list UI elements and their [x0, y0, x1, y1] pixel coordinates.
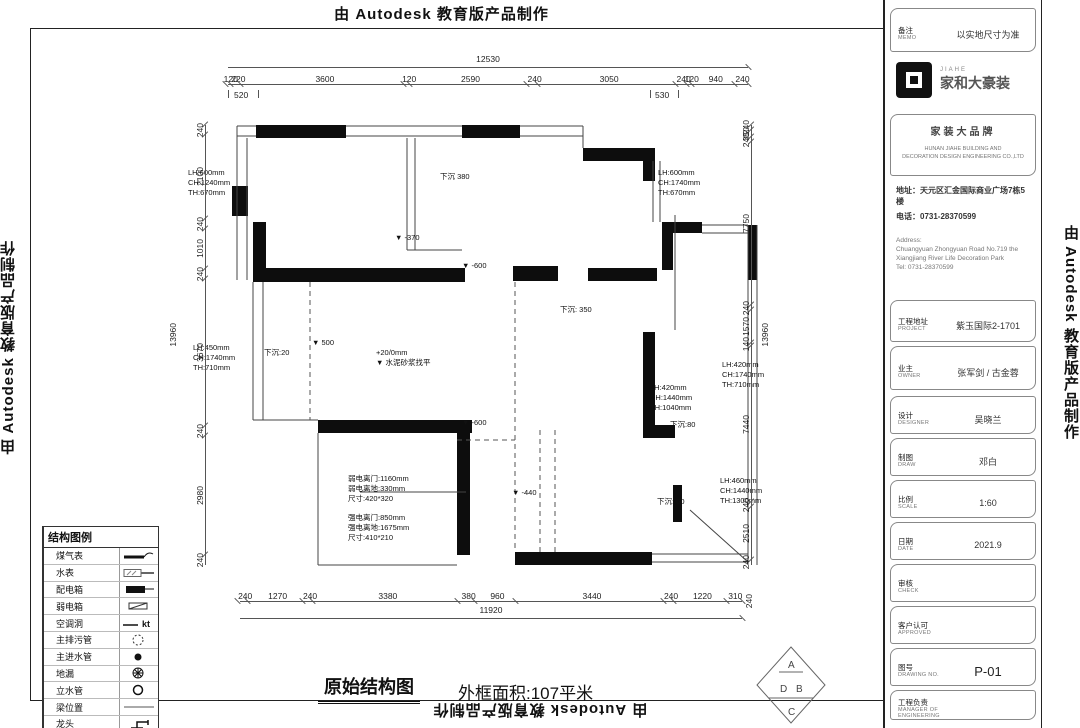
dimension-segment: 310 — [729, 588, 742, 601]
titleblock-field-check: 审核CHECK — [890, 564, 1036, 602]
dimension-label: 1570 — [741, 317, 751, 336]
frame-left — [30, 28, 31, 701]
dimension-chain-top: 12530 1202203600120259024030502401209402… — [228, 54, 748, 85]
legend-row: 配电箱 — [44, 582, 158, 599]
dimension-segment: 2590 — [412, 71, 529, 84]
svg-text:kt: kt — [142, 619, 150, 629]
memo-label: 备注 — [898, 27, 948, 35]
structure-legend: 结构图例 煤气表水表配电箱弱电箱空调洞kt主排污管主进水管地漏立水管梁位置龙头 — [42, 526, 159, 728]
compass-letter-a: A — [788, 660, 795, 671]
legend-label: 地漏 — [44, 667, 119, 680]
area-label: 外框面积:107平米 — [458, 679, 593, 704]
dimension-segment: 240 — [737, 71, 748, 84]
standpipe-symbol — [119, 682, 158, 698]
gas-symbol — [119, 548, 158, 564]
memo-value: 以实地尺寸为准 — [948, 28, 1028, 41]
field-value: 张军剑 / 古金蓉 — [948, 366, 1028, 379]
drawing-title: 原始结构图 — [318, 673, 420, 704]
floor-plan — [210, 110, 770, 580]
compass-letter-b: B — [796, 684, 803, 695]
frame-titleblock-divider — [883, 0, 885, 728]
field-label: 客户认可 — [898, 622, 948, 630]
titleblock-field-draw: 制图DRAW邓白 — [890, 438, 1036, 476]
legend-label: 配电箱 — [44, 583, 119, 596]
dimension-segment: 3380 — [315, 588, 460, 601]
dimension-label: 240 — [735, 74, 749, 84]
dimension-label: 2510 — [741, 524, 751, 543]
tick — [650, 90, 651, 98]
field-label-en: CHECK — [898, 588, 948, 594]
beam-symbol — [119, 699, 158, 715]
cad-drawing-sheet: 由 Autodesk 教育版产品制作 由 Autodesk 教育版产品制作 由 … — [0, 0, 1080, 728]
field-label-en: APPROVED — [898, 630, 948, 636]
legend-row: 地漏 — [44, 666, 158, 683]
dimension-segment: 3440 — [518, 588, 666, 601]
legend-row: 主进水管 — [44, 649, 158, 666]
compass-letter-c: C — [788, 707, 795, 718]
weakbox-symbol — [119, 598, 158, 614]
legend-row: 梁位置 — [44, 699, 158, 716]
dimension-segment: 1220 — [676, 588, 728, 601]
logo-main-text: 家和大豪装 — [940, 73, 1010, 93]
distbox-symbol — [119, 582, 158, 598]
field-label-en: SCALE — [898, 504, 948, 510]
company-logo — [896, 62, 932, 98]
brand-en2: DECORATION DESIGN ENGINEERING CO.,LTD — [891, 154, 1035, 160]
legend-label: 水表 — [44, 566, 119, 579]
titleblock-memo: 备注 MEMO 以实地尺寸为准 — [890, 8, 1036, 52]
contact-address: 地址：天元区汇金国际商业广场7栋5楼 — [896, 185, 1030, 207]
tick — [228, 90, 229, 98]
legend-row: 立水管 — [44, 682, 158, 699]
dimension-label: 3670 — [195, 343, 205, 362]
legend-label: 煤气表 — [44, 549, 119, 562]
legend-label: 龙头 — [44, 717, 119, 728]
legend-row: 弱电箱 — [44, 598, 158, 615]
dimension-segment: 240 — [192, 125, 205, 135]
titleblock-field-date: 日期DATE2021.9 — [890, 522, 1036, 560]
titleblock-field-project: 工程地址PROJECT紫玉国际2-1701 — [890, 300, 1036, 342]
compass-letter-d: D — [780, 684, 787, 695]
dimension-label: 940 — [709, 74, 723, 84]
titleblock-contact-en: Address: Chuangyuan Zhongyuan Road No.71… — [890, 234, 1036, 294]
autodesk-credit-top: 由 Autodesk 教育版产品制作 — [0, 3, 883, 24]
legend-label: 立水管 — [44, 684, 119, 697]
brand-slogan: 家装大品牌 — [891, 123, 1035, 138]
dimension-total-top: 12530 — [476, 54, 500, 67]
dimension-label: 7750 — [741, 214, 751, 233]
compass-diamond: A D B C — [755, 645, 827, 725]
field-label: 设计 — [898, 412, 948, 420]
faucet-symbol — [119, 716, 158, 728]
dimension-label: 3050 — [600, 74, 619, 84]
legend-row: 煤气表 — [44, 548, 158, 565]
dimension-label: 3440 — [583, 591, 602, 601]
dimension-segment: 240 — [192, 555, 205, 565]
dimension-label: 310 — [728, 591, 742, 601]
dimension-segment: 2980 — [192, 436, 205, 556]
field-label: 业主 — [898, 365, 948, 373]
field-value: 邓白 — [948, 455, 1028, 468]
field-label: 制图 — [898, 454, 948, 462]
dimension-label: 1220 — [693, 591, 712, 601]
dimension-chain-right: 2403502407750240157014074402402510240 13… — [738, 125, 772, 565]
dimension-segment: 7440 — [738, 346, 751, 502]
field-label: 日期 — [898, 538, 948, 546]
dimension-segment: 3670 — [192, 279, 205, 426]
titleblock-field-approved: 客户认可APPROVED — [890, 606, 1036, 644]
achole-symbol: kt — [119, 615, 158, 631]
frame-right — [1041, 0, 1042, 728]
field-value: 2021.9 — [948, 540, 1028, 550]
legend-row: 主排污管 — [44, 632, 158, 649]
field-label-en: DATE — [898, 546, 948, 552]
brand-en1: HUNAN JIAHE BUILDING AND — [891, 146, 1035, 152]
dimension-tier2-left: 520 — [234, 90, 248, 100]
tick — [678, 90, 679, 98]
dimension-segment: 1270 — [250, 588, 305, 601]
dimension-segment: 240 — [738, 560, 751, 565]
legend-title: 结构图例 — [44, 527, 158, 548]
dimension-label: 1270 — [268, 591, 287, 601]
dimension-label: 3600 — [315, 74, 334, 84]
dimension-label: 240 — [741, 555, 751, 569]
dimension-segment: 7750 — [738, 142, 751, 305]
dimension-chain-left: 13960 2402100240101024036702402980240 — [176, 125, 210, 565]
legend-label: 梁位置 — [44, 701, 119, 714]
dimension-total-right: 13960 — [760, 323, 770, 347]
dimension-label: 960 — [490, 591, 504, 601]
field-label-en: OWNER — [898, 373, 948, 379]
field-value: P-01 — [948, 664, 1028, 679]
legend-row: 空调洞kt — [44, 615, 158, 632]
contact-en-3: Xiangjiang River Life Decoration Park — [896, 255, 1030, 262]
field-label-en: PROJECT — [898, 326, 948, 332]
memo-en: MEMO — [898, 35, 948, 41]
field-label-en: DRAWING NO. — [898, 672, 948, 678]
legend-label: 主进水管 — [44, 650, 119, 663]
dimension-segment: 240 — [192, 219, 205, 229]
legend-label: 主排污管 — [44, 633, 119, 646]
titleblock-contact: 地址：天元区汇金国际商业广场7栋5楼 电话：0731-28370599 — [890, 182, 1036, 228]
field-value: 紫玉国际2-1701 — [948, 319, 1028, 332]
dimension-label: 2590 — [461, 74, 480, 84]
field-label: 工程地址 — [898, 318, 948, 326]
titleblock-brand: 家装大品牌 HUNAN JIAHE BUILDING AND DECORATIO… — [890, 114, 1036, 176]
dimension-label: 2980 — [195, 486, 205, 505]
titleblock-field-designer: 设计DESIGNER吴晓兰 — [890, 396, 1036, 434]
sewage-symbol — [119, 632, 158, 648]
dimension-segment: 1010 — [192, 229, 205, 270]
dimension-label: 2100 — [195, 167, 205, 186]
autodesk-credit-left: 由 Autodesk 教育版产品制作 — [0, 240, 19, 455]
drain-symbol — [119, 666, 158, 682]
dimension-segment: 2510 — [738, 507, 751, 560]
dimension-segment: 940 — [694, 71, 737, 84]
field-value: 1:60 — [948, 498, 1028, 508]
walls — [232, 125, 757, 565]
titleblock-field-drawing-no-: 图号DRAWING NO.P-01 — [890, 648, 1036, 686]
field-label-en: DESIGNER — [898, 420, 948, 426]
dimension-total-bottom: 11920 — [479, 605, 502, 618]
legend-label: 空调洞 — [44, 617, 119, 630]
dimension-label: 7440 — [741, 415, 751, 434]
field-label-en: MANAGER OF ENGINEERING — [898, 707, 948, 719]
dimension-total-left: 13960 — [168, 323, 178, 347]
titleblock-field-scale: 比例SCALE1:60 — [890, 480, 1036, 518]
dimension-chain-bottom: 2401270240338038096034402401220310 11920 — [240, 588, 742, 619]
titleblock-field-owner: 业主OWNER张军剑 / 古金蓉 — [890, 346, 1036, 390]
watermeter-symbol — [119, 565, 158, 581]
dimension-segment: 240 — [192, 269, 205, 279]
frame-top — [30, 28, 883, 29]
inlet-symbol — [119, 649, 158, 665]
dimension-label: 240 — [195, 553, 205, 567]
contact-en-4: Tel: 0731-28370599 — [896, 264, 1030, 271]
dimension-segment: 2100 — [192, 135, 205, 219]
field-label-en: DRAW — [898, 462, 948, 468]
dimension-tier2-right: 530 — [655, 90, 669, 100]
contact-en-1: Address: — [896, 237, 1030, 244]
contact-en-2: Chuangyuan Zhongyuan Road No.719 the — [896, 246, 1030, 253]
dimension-segment: 240 — [192, 426, 205, 436]
dimension-segment: 3050 — [540, 71, 678, 84]
field-label: 比例 — [898, 496, 948, 504]
titleblock-logo: JIAHE 家和大豪装 — [890, 58, 1036, 110]
openings-dashed — [310, 282, 555, 552]
field-label: 审核 — [898, 580, 948, 588]
dimension-segment: 380 — [460, 588, 476, 601]
field-label: 图号 — [898, 664, 948, 672]
legend-row: 龙头 — [44, 716, 158, 728]
titleblock-field-manager-of-engineering: 工程负责MANAGER OF ENGINEERING — [890, 690, 1036, 720]
dimension-corner: 240 — [744, 594, 754, 608]
dimension-label: 3380 — [378, 591, 397, 601]
field-label: 工程负责 — [898, 699, 948, 707]
field-value: 吴晓兰 — [948, 413, 1028, 426]
legend-label: 弱电箱 — [44, 600, 119, 613]
contact-tel: 电话：0731-28370599 — [896, 211, 1030, 222]
dimension-segment: 3600 — [243, 71, 406, 84]
legend-row: 水表 — [44, 565, 158, 582]
tick — [258, 90, 259, 98]
dimension-label: 1010 — [195, 239, 205, 258]
autodesk-credit-right: 由 Autodesk 教育版产品制作 — [1060, 225, 1080, 440]
